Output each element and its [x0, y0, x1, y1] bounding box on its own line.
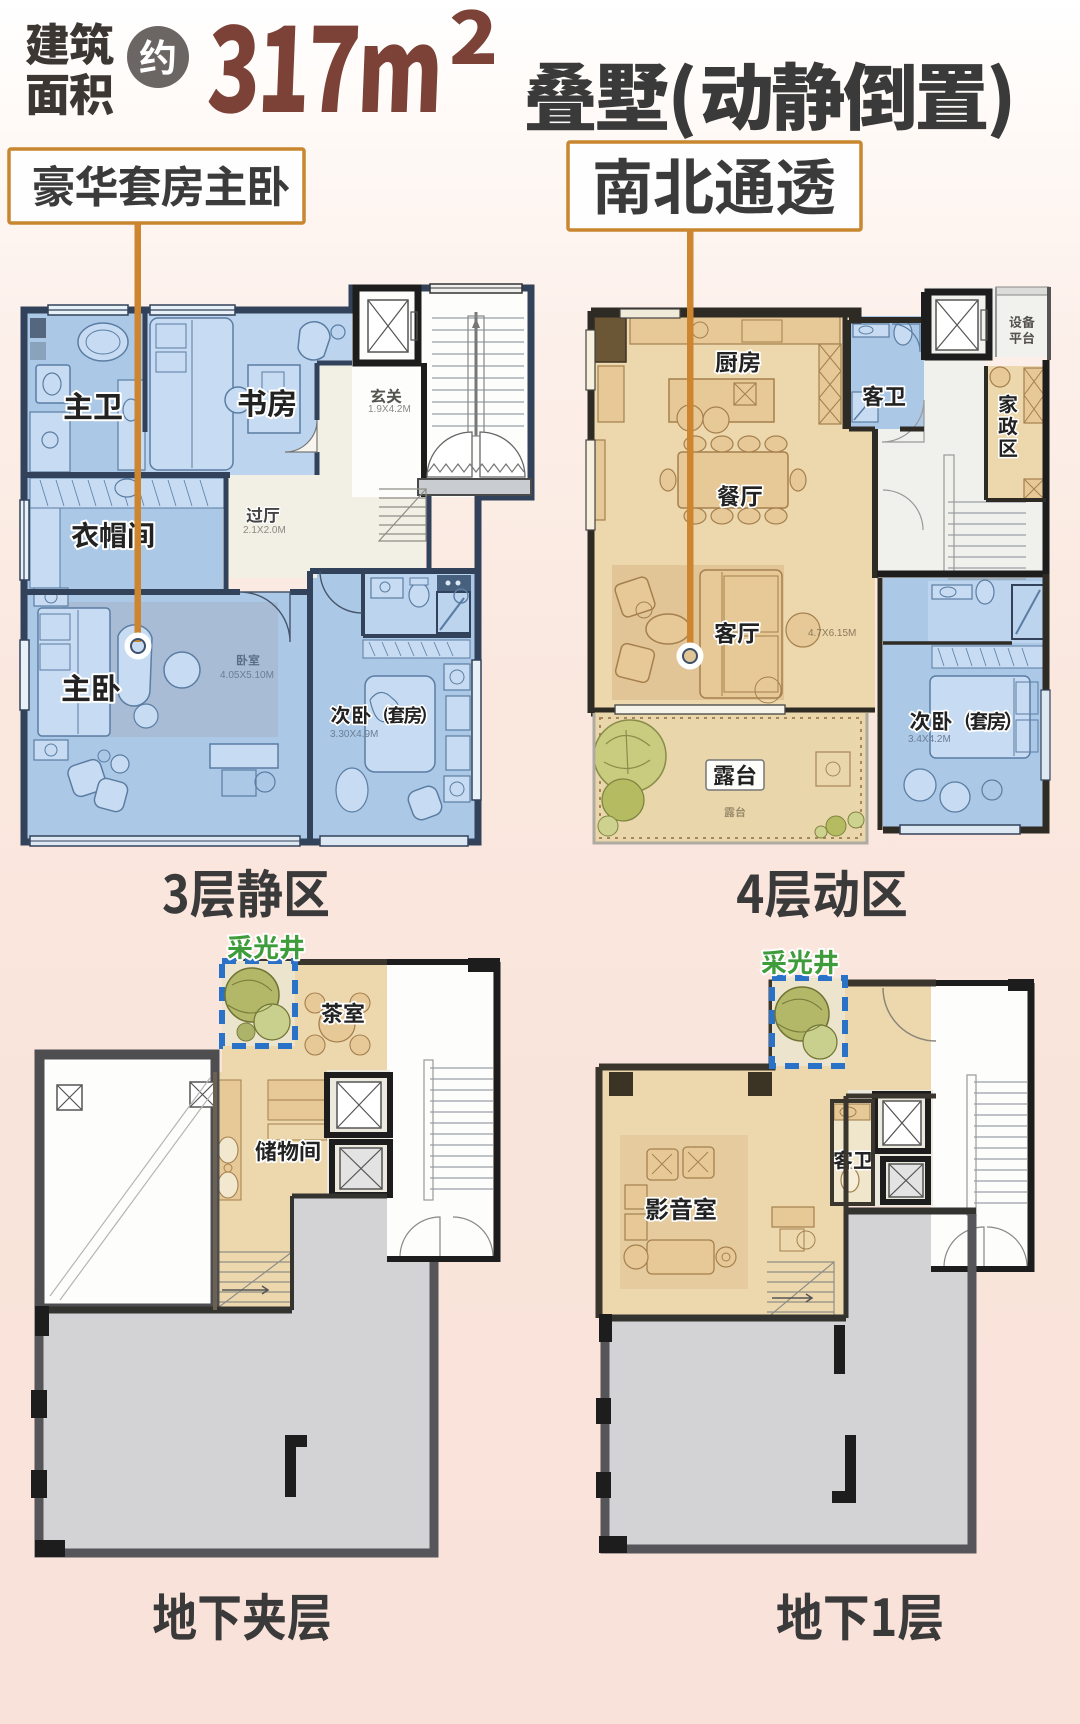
svg-text:4.05X5.10M: 4.05X5.10M [220, 670, 274, 681]
svg-text:1.9X4.2M: 1.9X4.2M [368, 404, 411, 415]
svg-text:2.1X2.0M: 2.1X2.0M [243, 525, 286, 536]
svg-text:3.30X4.9M: 3.30X4.9M [330, 729, 378, 740]
svg-text:4.7X6.15M: 4.7X6.15M [808, 628, 856, 639]
svg-text:3.4X4.2M: 3.4X4.2M [908, 734, 951, 745]
